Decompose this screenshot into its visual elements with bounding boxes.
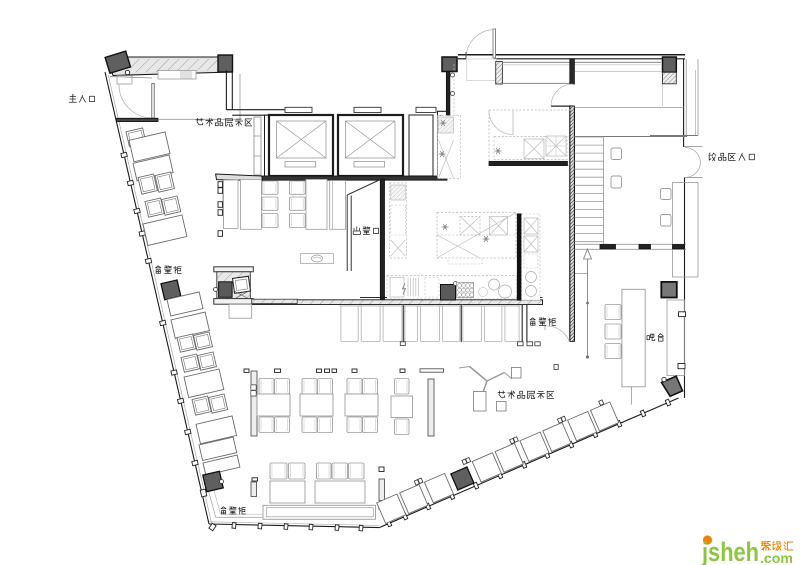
svg-text:jsheh: jsheh [701,537,759,565]
svg-text:.com: .com [760,551,793,565]
